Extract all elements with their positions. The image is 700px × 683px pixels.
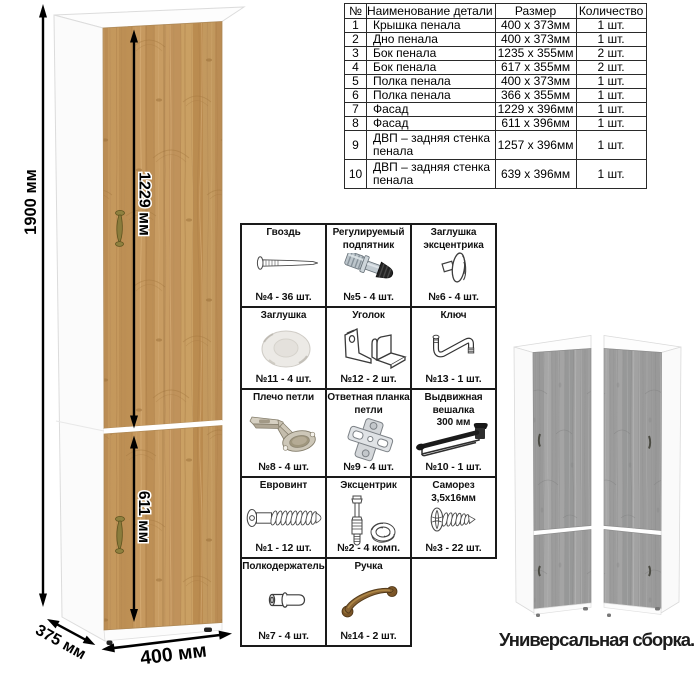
svg-text:1900 мм: 1900 мм — [22, 169, 40, 235]
svg-text:611 мм: 611 мм — [135, 491, 152, 543]
svg-text:1229 мм: 1229 мм — [136, 172, 153, 236]
svg-text:375 мм: 375 мм — [32, 622, 88, 663]
